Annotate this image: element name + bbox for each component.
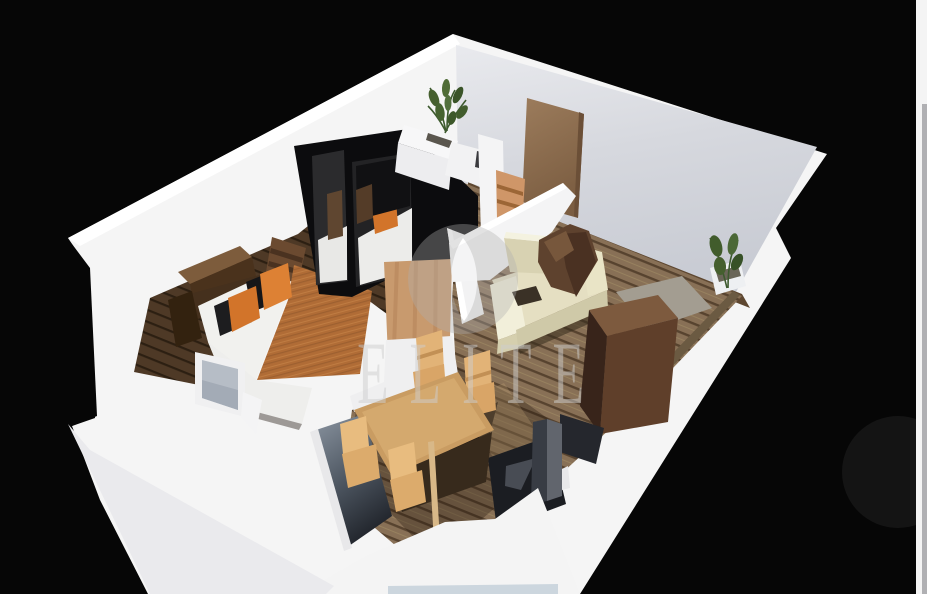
svg-text:ELITE: ELITE (357, 323, 605, 422)
